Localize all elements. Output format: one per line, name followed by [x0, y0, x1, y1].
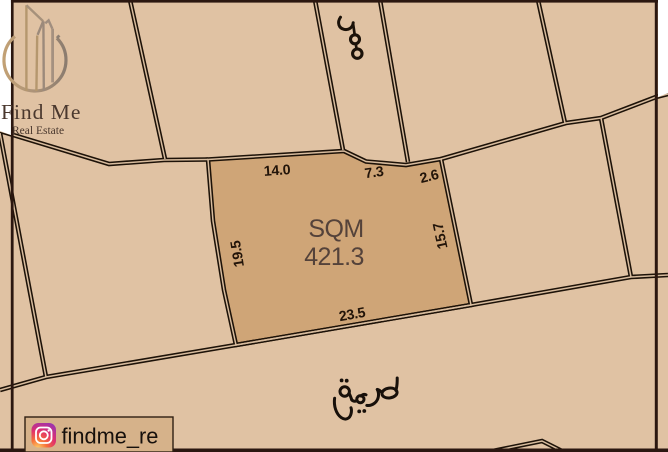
svg-text:SQM: SQM — [308, 215, 363, 243]
svg-text:findme_re: findme_re — [62, 424, 159, 449]
svg-text:421.3: 421.3 — [304, 243, 364, 271]
svg-text:14.0: 14.0 — [263, 162, 291, 180]
svg-text:Find Me: Find Me — [1, 100, 81, 124]
svg-text:Real Estate: Real Estate — [12, 125, 64, 137]
svg-text:7.3: 7.3 — [364, 164, 385, 183]
